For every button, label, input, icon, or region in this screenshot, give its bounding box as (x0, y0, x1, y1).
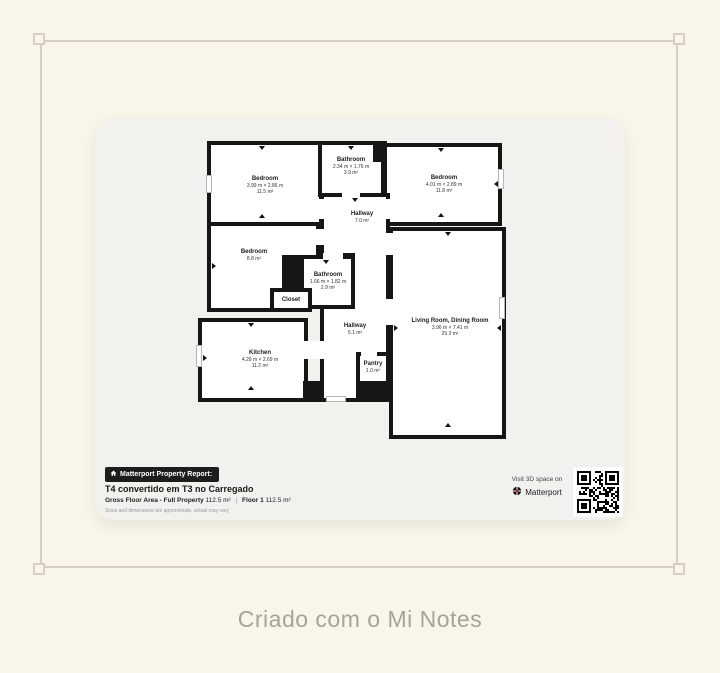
floor-label: Floor 1 (242, 497, 264, 504)
dimension-tick (445, 232, 451, 236)
room-label: Bedroom 4.01 m × 2.89 m 11.8 m² (426, 174, 462, 194)
door-opening (386, 233, 395, 255)
door-opening (342, 191, 360, 198)
room-name: Hallway (344, 322, 366, 330)
stats-divider: | (236, 497, 238, 504)
dimension-tick (259, 146, 265, 150)
dimension-tick (212, 263, 216, 269)
room-label: Hallway 7.0 m² (351, 210, 373, 224)
room-name: Bathroom (333, 156, 369, 164)
room-label: Closet (282, 296, 300, 304)
window-marker (196, 345, 202, 367)
report-title: T4 convertido em T3 no Carregado (105, 484, 254, 494)
wall-block (356, 385, 390, 402)
room-name: Living Room, Dining Room (412, 317, 489, 325)
note-card: Bedroom 3.99 m × 2.86 m 11.5 m² Bathroom… (95, 118, 625, 520)
door-opening (361, 348, 377, 357)
door-opening (386, 299, 395, 325)
room-name: Hallway (351, 210, 373, 218)
qr-code (573, 467, 623, 517)
dimension-tick (348, 146, 354, 150)
dimension-tick (494, 181, 498, 187)
room-area: 5.1 m² (344, 330, 366, 336)
room-label: Bedroom 3.99 m × 2.86 m 11.5 m² (247, 175, 283, 195)
dimension-tick (248, 386, 254, 390)
report-disclaimer: Sizes and dimensions are approximate, ac… (105, 508, 229, 514)
wall-block (373, 141, 387, 162)
window-marker (498, 169, 504, 189)
caption: Criado com o Mi Notes (0, 606, 720, 633)
room-area: 7.0 m² (351, 218, 373, 224)
door-opening (303, 341, 324, 359)
corner-ornament-top-left (33, 33, 45, 45)
matterport-logo-icon (512, 486, 522, 498)
gross-area-label: Gross Floor Area - Full Property (105, 497, 204, 504)
visit-3d-text: Visit 3D space on (500, 476, 574, 483)
dimension-tick (497, 325, 501, 331)
room-label: Bedroom 8.8 m² (241, 248, 267, 262)
window-marker (206, 175, 212, 193)
dimension-tick (259, 214, 265, 218)
room-area: 29.3 m² (412, 331, 489, 337)
window-marker (499, 297, 505, 319)
room-name: Kitchen (242, 349, 278, 357)
room-area: 1.0 m² (364, 368, 383, 374)
room-name: Bedroom (247, 175, 283, 183)
room-name: Bathroom (310, 271, 346, 279)
report-badge: Matterport Property Report: (105, 467, 219, 482)
room-label: Pantry 1.0 m² (364, 360, 383, 374)
room-area: 11.5 m² (247, 189, 283, 195)
room-area: 3.9 m² (333, 170, 369, 176)
dimension-tick (394, 325, 398, 331)
corner-ornament-bottom-left (33, 563, 45, 575)
gross-area-value: 112.5 m² (206, 497, 231, 504)
dimension-tick (438, 148, 444, 152)
report-stats: Gross Floor Area - Full Property 112.5 m… (105, 497, 291, 504)
dimension-tick (438, 213, 444, 217)
corner-ornament-top-right (673, 33, 685, 45)
room-label: Living Room, Dining Room 3.96 m × 7.41 m… (412, 317, 489, 337)
room-area: 8.8 m² (241, 256, 267, 262)
visit-3d-block: Visit 3D space on Matterport (500, 476, 574, 498)
room-name: Bedroom (241, 248, 267, 256)
wall-block (303, 381, 321, 402)
dimension-tick (445, 423, 451, 427)
dimension-tick (323, 260, 329, 264)
report-badge-label: Matterport Property Report: (120, 471, 212, 478)
dimension-tick (352, 198, 358, 202)
door-opening (312, 229, 325, 245)
room-name: Pantry (364, 360, 383, 368)
room-name: Closet (282, 296, 300, 304)
floor-value: 112.5 m² (266, 497, 291, 504)
room-hallway-upper (320, 193, 390, 257)
dimension-tick (248, 323, 254, 327)
room-area: 2.9 m² (310, 285, 346, 291)
room-label: Hallway 5.1 m² (344, 322, 366, 336)
door-opening (323, 253, 343, 260)
door-opening (317, 199, 325, 219)
house-icon (110, 470, 117, 479)
dimension-tick (203, 355, 207, 361)
corner-ornament-bottom-right (673, 563, 685, 575)
room-name: Bedroom (426, 174, 462, 182)
matterport-wordmark: Matterport (525, 488, 561, 497)
door-opening (384, 199, 392, 219)
window-marker (326, 396, 346, 402)
room-area: 11.8 m² (426, 188, 462, 194)
floorplan: Bedroom 3.99 m × 2.86 m 11.5 m² Bathroom… (205, 141, 505, 441)
matterport-logo: Matterport (500, 486, 574, 498)
room-label: Bathroom 2.34 m × 1.76 m 3.9 m² (333, 156, 369, 176)
room-area: 11.2 m² (242, 363, 278, 369)
room-label: Bathroom 1.66 m × 1.82 m 2.9 m² (310, 271, 346, 291)
room-label: Kitchen 4.29 m × 2.69 m 11.2 m² (242, 349, 278, 369)
hallway-connector (355, 253, 386, 309)
